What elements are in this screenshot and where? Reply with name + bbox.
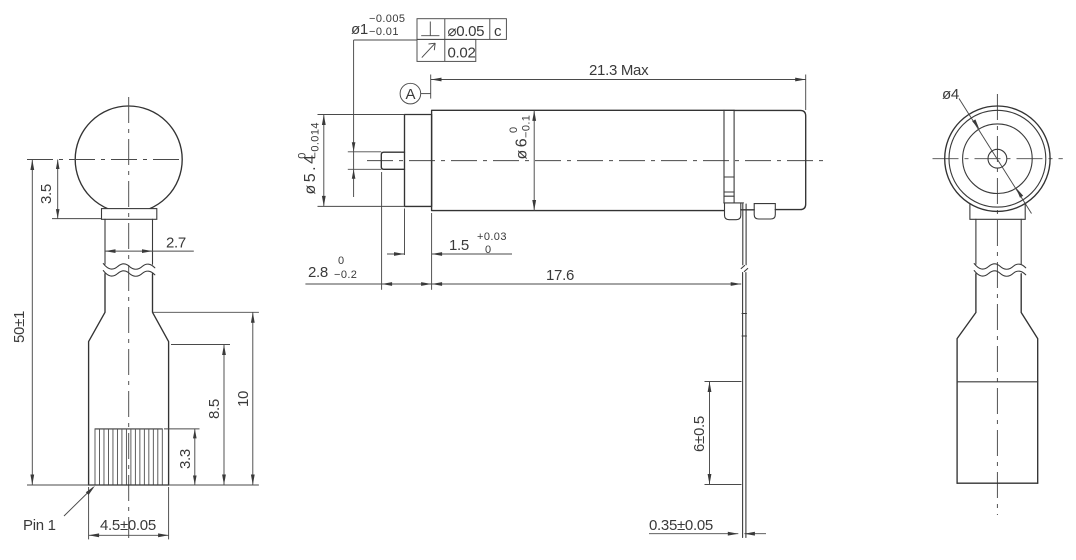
svg-text:2.7: 2.7 [166,235,186,252]
svg-text:c: c [494,23,502,40]
svg-text:−0.1: −0.1 [521,115,533,138]
svg-text:8.5: 8.5 [206,399,223,419]
svg-text:3.3: 3.3 [177,449,194,469]
svg-text:0.02: 0.02 [448,45,476,62]
svg-text:2.8: 2.8 [308,264,328,281]
svg-text:ø1: ø1 [351,21,368,38]
svg-text:3.5: 3.5 [38,184,55,204]
svg-text:4.5±0.05: 4.5±0.05 [100,517,156,534]
svg-text:17.6: 17.6 [546,267,574,284]
svg-text:0.35±0.05: 0.35±0.05 [649,517,713,534]
svg-text:10: 10 [235,391,252,407]
svg-text:1.5: 1.5 [449,237,469,254]
svg-text:21.3 Max: 21.3 Max [589,62,649,79]
svg-text:−0.01: −0.01 [369,26,399,38]
svg-text:⌀0.05: ⌀0.05 [448,23,485,40]
svg-text:+0.03: +0.03 [477,231,507,243]
svg-text:Pin 1: Pin 1 [23,517,56,534]
svg-text:ø4: ø4 [942,86,959,103]
svg-text:50±1: 50±1 [11,311,28,343]
svg-text:ø6: ø6 [514,136,531,160]
svg-text:−0.2: −0.2 [334,269,357,281]
svg-text:0: 0 [508,126,520,133]
svg-text:6±0.5: 6±0.5 [691,416,708,452]
svg-text:A: A [406,86,416,103]
svg-text:0: 0 [485,244,492,256]
svg-text:−0.005: −0.005 [369,13,405,25]
svg-text:−0.014: −0.014 [310,122,322,158]
svg-text:0: 0 [338,255,345,267]
svg-text:0: 0 [297,152,309,159]
